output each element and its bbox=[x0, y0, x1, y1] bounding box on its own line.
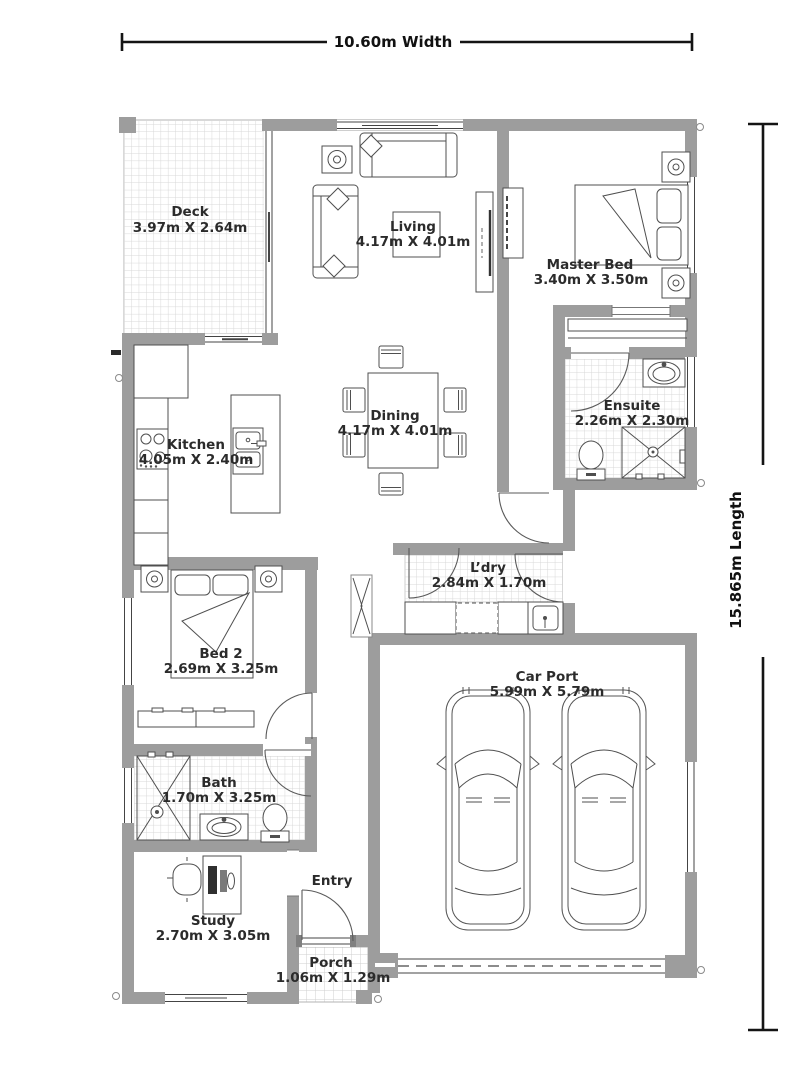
hall-master-door bbox=[499, 493, 549, 543]
room-label-living-name: Living bbox=[390, 219, 436, 235]
wall-corner-post bbox=[119, 117, 136, 133]
toilet-icon bbox=[261, 804, 289, 842]
room-label-dining-name: Dining bbox=[370, 408, 419, 424]
room-label-porch-size: 1.06m X 1.29m bbox=[276, 970, 391, 986]
room-label-carport-name: Car Port bbox=[516, 669, 579, 685]
room-label-living-size: 4.17m X 4.01m bbox=[356, 234, 471, 250]
study-window bbox=[165, 992, 247, 1004]
room-label-ensuite-size: 2.26m X 2.30m bbox=[575, 413, 690, 429]
room-label-bath-size: 1.70m X 3.25m bbox=[162, 790, 277, 806]
living-furniture bbox=[313, 133, 523, 292]
nightstand-icon bbox=[141, 566, 168, 592]
room-label-kitchen-size: 4.05m X 2.40m bbox=[139, 452, 254, 468]
wall-deck-bottom bbox=[122, 333, 205, 345]
floor-plan-drawing: Deck 3.97m X 2.64m Living 4.17m X 4.01m … bbox=[0, 0, 800, 1066]
wall-ensuite-bottom bbox=[553, 478, 697, 490]
desk-icon bbox=[203, 856, 241, 914]
floor-plan-page: Deck 3.97m X 2.64m Living 4.17m X 4.01m … bbox=[0, 0, 800, 1066]
room-label-porch-name: Porch bbox=[309, 955, 352, 971]
meter-tick bbox=[111, 350, 121, 355]
laundry-ext-door-opening bbox=[563, 551, 575, 603]
entry-threshold bbox=[296, 935, 356, 947]
carport-side-opening bbox=[685, 762, 697, 872]
sofa2-icon bbox=[313, 185, 358, 278]
room-label-entry-name: Entry bbox=[312, 873, 353, 889]
room-label-master-size: 3.40m X 3.50m bbox=[534, 272, 649, 288]
robe-cased-opening bbox=[612, 305, 670, 317]
room-label-dining-size: 4.17m X 4.01m bbox=[338, 423, 453, 439]
kitchen-pantry bbox=[134, 345, 188, 398]
wall-carport-top bbox=[373, 633, 697, 645]
side-table-lamp-icon bbox=[322, 146, 352, 173]
room-label-bath-name: Bath bbox=[201, 775, 236, 791]
carport-cars bbox=[437, 687, 655, 930]
vanity-basin-icon bbox=[643, 359, 685, 387]
laundry-bench bbox=[498, 602, 528, 634]
room-label-kitchen-name: Kitchen bbox=[167, 437, 225, 453]
washing-machine-icon bbox=[456, 603, 498, 633]
width-dimension-label: 10.60m Width bbox=[334, 33, 453, 51]
robe-shelf-icon bbox=[568, 319, 687, 338]
room-label-bed2-size: 2.69m X 3.25m bbox=[164, 661, 279, 677]
desk-chair-icon bbox=[167, 857, 201, 902]
deck-kitchen-slider bbox=[205, 334, 262, 344]
tv-unit-master-icon bbox=[503, 188, 523, 258]
dimension-width: 10.60m Width bbox=[122, 33, 692, 51]
sofa-icon bbox=[360, 133, 457, 177]
room-label-deck-size: 3.97m X 2.64m bbox=[133, 220, 248, 236]
wall-bed2-right bbox=[305, 570, 317, 693]
nightstand-icon bbox=[662, 152, 690, 182]
bed2-door bbox=[266, 693, 312, 739]
wall-corridor-right bbox=[553, 317, 565, 478]
room-label-study-name: Study bbox=[191, 913, 235, 929]
living-window bbox=[337, 120, 463, 131]
master-bed-icon bbox=[575, 185, 688, 265]
room-label-master-name: Master Bed bbox=[547, 257, 634, 273]
toilet-icon bbox=[577, 441, 605, 480]
wall-deck-post bbox=[262, 333, 278, 345]
room-label-study-size: 2.70m X 3.05m bbox=[156, 928, 271, 944]
nightstand-icon bbox=[662, 268, 690, 298]
room-label-laundry-size: 2.84m X 1.70m bbox=[432, 575, 547, 591]
wall-top bbox=[262, 119, 697, 131]
garage-door bbox=[398, 959, 665, 973]
length-dimension-label: 15.865m Length bbox=[727, 491, 745, 629]
dimension-length: 15.865m Length bbox=[727, 124, 778, 1030]
wall-laundry-top bbox=[393, 543, 575, 555]
vanity-basin-icon bbox=[200, 814, 248, 840]
bath-window bbox=[122, 768, 134, 823]
room-label-deck-name: Deck bbox=[171, 204, 209, 220]
study-furniture bbox=[167, 856, 241, 914]
laundry-bench bbox=[405, 602, 456, 634]
room-label-ensuite-name: Ensuite bbox=[604, 398, 661, 414]
room-label-laundry-name: L’dry bbox=[470, 560, 506, 576]
porch-post bbox=[356, 990, 372, 1004]
porch-step-line bbox=[375, 963, 395, 967]
tv-unit-living-icon bbox=[476, 192, 493, 292]
room-label-bed2-name: Bed 2 bbox=[199, 646, 242, 662]
linen-closet-icon bbox=[351, 575, 372, 637]
garage-post-right bbox=[665, 955, 697, 978]
wall-living-master bbox=[497, 131, 509, 492]
laundry-tub-icon bbox=[528, 602, 563, 634]
deck-living-slider bbox=[264, 131, 274, 333]
study-door-opening bbox=[287, 850, 299, 896]
wardrobe-icon bbox=[138, 708, 254, 727]
nightstand-icon bbox=[255, 566, 282, 592]
bed2-window bbox=[122, 598, 134, 685]
room-label-carport-size: 5.99m X 5.79m bbox=[490, 684, 605, 700]
entry-door bbox=[302, 890, 353, 941]
